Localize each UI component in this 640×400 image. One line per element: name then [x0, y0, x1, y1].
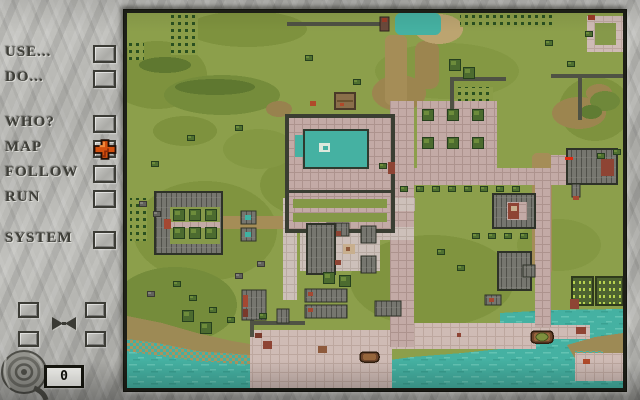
map-bush [520, 233, 528, 239]
map-rect [340, 103, 344, 106]
map-rect [335, 260, 341, 265]
map-rect [361, 256, 376, 273]
checkbox-use[interactable] [93, 45, 116, 63]
map-bush [488, 233, 496, 239]
map-rect [415, 41, 439, 89]
town-wall [287, 22, 383, 26]
map-bush [305, 55, 313, 61]
map-rock [257, 261, 265, 267]
crop-field [460, 14, 552, 27]
map-rect [375, 301, 401, 316]
map-rect [245, 215, 251, 220]
map-rect [588, 15, 595, 20]
map-rect [323, 146, 328, 150]
pan-button-nw[interactable] [18, 302, 39, 318]
map-tree [463, 67, 475, 79]
map-rect [243, 295, 248, 307]
map-tree [449, 59, 461, 71]
menu-item-use[interactable]: USE... [5, 44, 51, 61]
map-tree [447, 137, 459, 149]
map-rect [489, 298, 494, 302]
map-ell [139, 57, 191, 73]
menu-row-map: MAP [0, 139, 127, 161]
map-tree [189, 209, 201, 221]
map-bush [227, 317, 235, 323]
map-tree [323, 272, 335, 284]
map-bush [496, 186, 504, 192]
map-rect [382, 18, 387, 22]
menu-item-map[interactable]: MAP [5, 139, 42, 156]
map-rect [361, 226, 376, 243]
map-rect [450, 77, 506, 81]
menu-row-who: WHO? [0, 114, 127, 136]
map-rect [601, 159, 614, 176]
map-rect [573, 196, 579, 200]
map-bush [464, 186, 472, 192]
map-rock [147, 291, 155, 297]
map-rect [289, 190, 391, 193]
map-rock [139, 201, 147, 207]
map-rect [346, 247, 350, 251]
crossed-arrows-icon [50, 315, 78, 332]
menu-row-system: SYSTEM [0, 230, 127, 252]
map-bush [457, 265, 465, 271]
map-bush [379, 163, 387, 169]
map-rect [263, 341, 272, 349]
map-rect [293, 213, 387, 222]
map-rect [318, 346, 327, 353]
map-rect [388, 162, 395, 174]
sailboat [531, 331, 553, 343]
map-rect [511, 206, 517, 211]
map-tree [173, 209, 185, 221]
pond [395, 13, 441, 35]
crop-field [171, 15, 198, 55]
map-rect [245, 232, 251, 237]
checkbox-map[interactable] [93, 140, 116, 158]
map-bush [597, 153, 605, 159]
map-rect [277, 309, 289, 323]
pan-button-ne[interactable] [85, 302, 106, 318]
map-rect [576, 327, 586, 334]
map-tree [472, 137, 484, 149]
map-tree [182, 310, 194, 322]
map-bush [545, 40, 553, 46]
menu-row-use: USE... [0, 44, 127, 66]
town-map[interactable] [127, 13, 623, 388]
map-frame [123, 9, 627, 392]
map-tree [339, 275, 351, 287]
counter-display: 0 [47, 368, 81, 386]
map-bush [400, 186, 408, 192]
menu-item-run[interactable]: RUN [5, 189, 41, 206]
map-rect [578, 74, 582, 120]
map-bush [432, 186, 440, 192]
map-rect [308, 292, 313, 296]
map-rect [572, 184, 580, 197]
checkbox-run[interactable] [93, 190, 116, 208]
checkbox-system[interactable] [93, 231, 116, 249]
map-rock [235, 273, 243, 279]
green-warehouse [596, 277, 623, 305]
checkbox-who[interactable] [93, 115, 116, 133]
map-rect [310, 101, 316, 106]
game-screen: USE...DO...WHO?MAPFOLLOWRUNSYSTEM 0 [0, 0, 640, 400]
menu-row-follow: FOLLOW [0, 164, 127, 186]
menu-item-system[interactable]: SYSTEM [5, 230, 73, 247]
crop-field [128, 43, 144, 60]
map-rect [535, 175, 551, 327]
map-bush [209, 307, 217, 313]
map-bush [235, 125, 243, 131]
map-tree [422, 137, 434, 149]
map-bush [416, 186, 424, 192]
map-bush [567, 61, 575, 67]
map-rect [243, 309, 248, 317]
bath-pool [304, 130, 368, 168]
map-bush [585, 31, 593, 37]
map-bush [480, 186, 488, 192]
map-bush [173, 281, 181, 287]
temple-building [307, 224, 335, 274]
map-rect [385, 35, 407, 105]
menu-row-do: DO... [0, 69, 127, 91]
menu-item-who[interactable]: WHO? [5, 114, 55, 131]
map-bush [259, 313, 267, 319]
counter-slot: 0 [44, 365, 84, 388]
map-bush [187, 135, 195, 141]
map-ell [580, 105, 602, 119]
map-ell [223, 129, 295, 169]
menu-item-do[interactable]: DO... [5, 69, 44, 86]
menu-row-run: RUN [0, 189, 127, 211]
map-bush [613, 149, 621, 155]
checkbox-follow[interactable] [93, 165, 116, 183]
crosshair-cursor-icon [93, 139, 117, 160]
map-rect [457, 333, 461, 337]
map-bush [512, 186, 520, 192]
map-tree [472, 109, 484, 121]
map-rect [164, 219, 171, 229]
menu-item-follow[interactable]: FOLLOW [5, 164, 79, 181]
map-rect [255, 333, 262, 338]
map-rect [337, 100, 353, 102]
map-rock [153, 211, 161, 217]
map-bush [189, 295, 197, 301]
map-tree [205, 227, 217, 239]
map-rect [308, 308, 313, 312]
map-rect [293, 199, 387, 208]
map-bush [437, 249, 445, 255]
map-tree [447, 109, 459, 121]
map-ell [153, 116, 217, 146]
map-bush [472, 233, 480, 239]
map-bush [504, 233, 512, 239]
map-rect [575, 353, 623, 381]
map-bush [151, 161, 159, 167]
rope-coil-icon [0, 344, 50, 400]
map-tree [189, 227, 201, 239]
checkbox-do[interactable] [93, 70, 116, 88]
map-bush [448, 186, 456, 192]
rowboat [360, 352, 379, 362]
map-rect [583, 359, 590, 364]
pan-button-se[interactable] [85, 331, 106, 347]
map-rect [523, 265, 535, 277]
map-rect [551, 74, 623, 78]
map-tree [205, 209, 217, 221]
map-bush [353, 79, 361, 85]
map-rect [595, 23, 616, 45]
map-tree [422, 109, 434, 121]
map-ell [175, 79, 255, 95]
map-tree [200, 322, 212, 334]
red-marker [565, 157, 573, 160]
map-rect [570, 299, 579, 309]
map-tree [173, 227, 185, 239]
